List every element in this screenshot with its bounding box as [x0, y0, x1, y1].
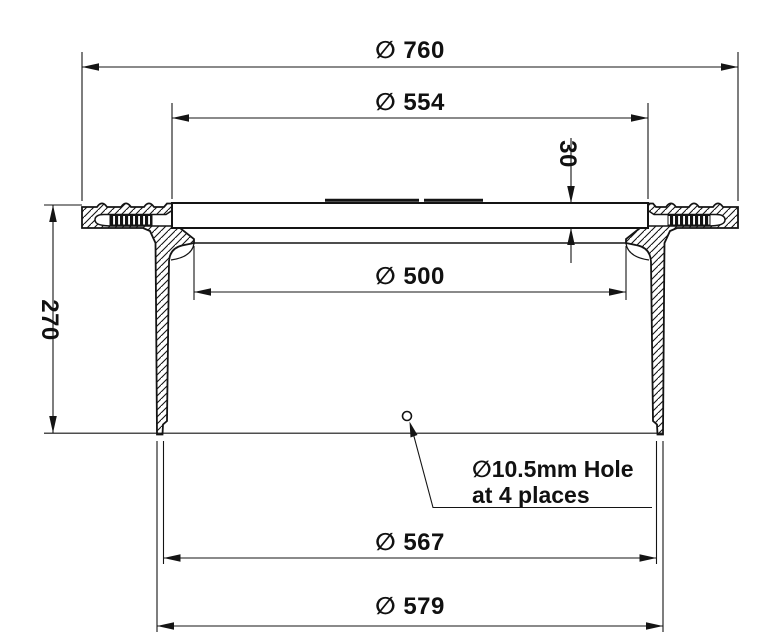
- dim-label-579: ∅ 579: [375, 593, 445, 620]
- arrowhead: [49, 205, 57, 222]
- arrowhead: [49, 416, 57, 433]
- cover-plate: [172, 200, 648, 228]
- arrowhead: [164, 554, 181, 562]
- hole-note-line2: at 4 places: [472, 482, 590, 508]
- arrowhead: [567, 228, 575, 245]
- dim-label-760: ∅ 760: [375, 37, 445, 64]
- arrowhead: [194, 288, 211, 296]
- arrowhead: [567, 186, 575, 203]
- arrowhead: [172, 114, 189, 122]
- bolt-hole: [403, 412, 412, 421]
- arrowhead: [82, 63, 99, 71]
- dim-label-567: ∅ 567: [375, 529, 445, 556]
- dimension-labels: ∅ 760 ∅ 554 ∅ 500 ∅ 567 ∅ 579 270 30 ∅10…: [36, 37, 634, 620]
- cover-plate-body: [172, 203, 648, 228]
- hole-note-line1: ∅10.5mm Hole: [472, 456, 634, 482]
- frame-section-left: [82, 203, 194, 434]
- leader-arrowhead: [410, 422, 418, 438]
- arrowhead: [631, 114, 648, 122]
- arrowhead: [157, 622, 174, 630]
- far-edges: [44, 243, 663, 433]
- frame-section-right: [626, 203, 738, 434]
- gasket-strip-left: [110, 216, 152, 226]
- gasket-strip-right: [668, 216, 710, 226]
- dim-label-30: 30: [554, 140, 581, 168]
- frame-section: [82, 203, 738, 434]
- cross-section-drawing: ∅ 760 ∅ 554 ∅ 500 ∅ 567 ∅ 579 270 30 ∅10…: [0, 0, 772, 637]
- dim-label-554: ∅ 554: [375, 89, 445, 116]
- arrowhead: [609, 288, 626, 296]
- dim-label-270: 270: [36, 299, 63, 341]
- arrowhead: [721, 63, 738, 71]
- arrowhead: [640, 554, 657, 562]
- dim-label-500: ∅ 500: [375, 263, 445, 290]
- technical-drawing-sheet: ∅ 760 ∅ 554 ∅ 500 ∅ 567 ∅ 579 270 30 ∅10…: [0, 0, 772, 637]
- arrowhead: [646, 622, 663, 630]
- ext-lines-760: [82, 52, 738, 201]
